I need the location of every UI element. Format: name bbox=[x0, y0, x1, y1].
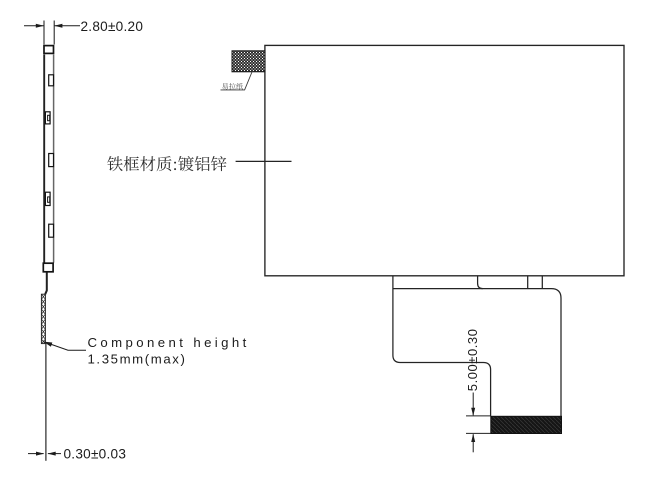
svg-text:1.35mm(max): 1.35mm(max) bbox=[88, 352, 187, 367]
svg-text:2.80±0.20: 2.80±0.20 bbox=[81, 19, 144, 34]
svg-text:0.30±0.03: 0.30±0.03 bbox=[64, 446, 127, 461]
svg-text:Component height: Component height bbox=[88, 335, 250, 350]
svg-text:5.00±0.30: 5.00±0.30 bbox=[465, 328, 480, 391]
